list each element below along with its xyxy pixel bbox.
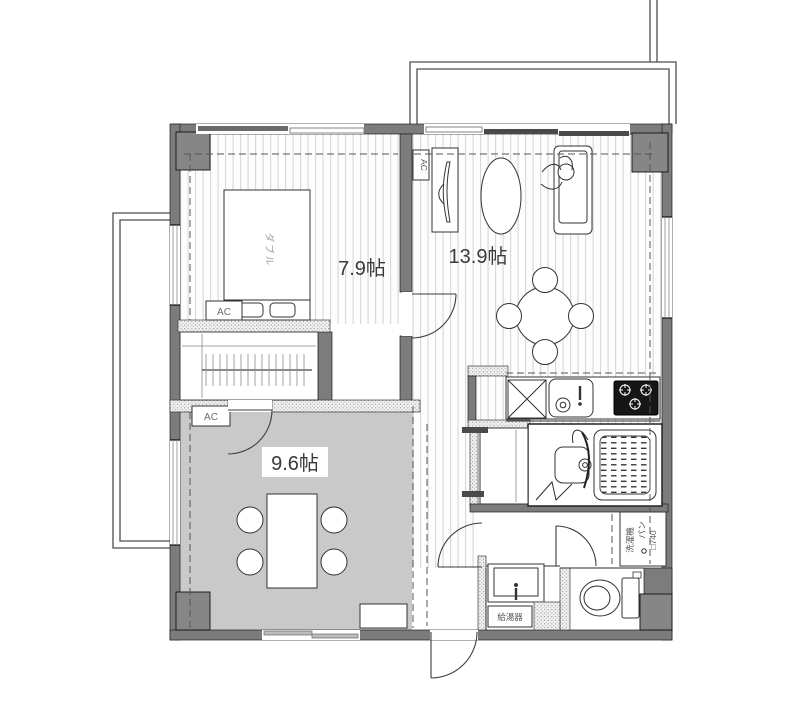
shelf-bracket-top	[462, 427, 488, 433]
floor-plan: 7.9帖 13.9帖 9.6帖 ダブル AC AC AC 洗濯機 パン □740…	[0, 0, 800, 726]
entrance-opening	[430, 630, 478, 640]
low-cabinet	[360, 604, 407, 628]
dining-chair-4	[321, 549, 347, 575]
wall-kitchen-left	[468, 366, 508, 376]
bedroom-window-sash-2	[290, 128, 364, 133]
walk-in-closet	[180, 332, 318, 400]
wall-toilet-left	[560, 568, 570, 630]
ac-label-living: AC	[419, 159, 429, 171]
entrance-floor	[412, 568, 478, 630]
pillow-right	[270, 303, 295, 317]
toilet-bowl	[580, 580, 620, 616]
ac-label-dining: AC	[204, 412, 218, 423]
pillar-top-left	[176, 132, 210, 170]
wall-bedroom-closet	[178, 320, 330, 332]
pillar-bottom-left	[176, 592, 210, 630]
gas-stove	[614, 381, 658, 415]
wall-bottom	[170, 630, 672, 640]
chair-north	[533, 268, 558, 293]
left-window-lower	[170, 440, 180, 545]
dining-chair-3	[237, 549, 263, 575]
living-window-sash-3	[559, 131, 629, 136]
dining-chair-2	[321, 507, 347, 533]
shelf-bracket-bottom	[462, 491, 484, 497]
chair-east	[569, 304, 594, 329]
wall-dining-top-right	[272, 400, 420, 412]
dining-size-label: 9.6帖	[271, 452, 319, 475]
wall-corridor-kitchen	[468, 376, 476, 422]
dining-bottom-window	[262, 630, 360, 640]
chair-south	[533, 340, 558, 365]
living-size-label: 13.9帖	[449, 245, 508, 268]
right-window	[662, 217, 672, 318]
rug-oval	[481, 158, 521, 234]
kitchen	[506, 377, 660, 421]
washer-label-3: □740	[648, 530, 658, 550]
bath-stool	[555, 447, 589, 483]
bathroom	[528, 424, 662, 506]
washbasin	[488, 564, 544, 602]
bathtub-water	[600, 436, 650, 494]
fridge-space	[508, 380, 546, 418]
water-heater-label: 給湯器	[497, 612, 523, 622]
chair-west	[497, 304, 522, 329]
washer-label-2: パン	[637, 521, 647, 538]
bedroom-size-label: 7.9帖	[338, 257, 386, 280]
living-window-sash-2	[484, 129, 558, 134]
toilet-tank	[622, 578, 639, 618]
pillar-bottom-right	[640, 594, 672, 630]
bedroom-door-opening	[402, 292, 412, 336]
kitchen-sink	[549, 379, 593, 417]
round-table	[516, 287, 574, 345]
living-window-sash-1	[426, 127, 482, 132]
ac-label-bedroom: AC	[217, 307, 231, 318]
wall-left	[170, 124, 180, 640]
dining-chair-1	[237, 507, 263, 533]
left-window-upper	[170, 225, 180, 305]
dining-table	[267, 494, 317, 588]
toilet-handle	[633, 572, 641, 578]
wall-bedroom-living-upper	[400, 134, 412, 292]
wall-bedroom-living-lower	[400, 336, 412, 404]
bed-label: ダブル	[263, 233, 275, 268]
bedroom-window-sash-1	[198, 126, 288, 131]
shoe-storage	[534, 602, 560, 630]
wall-closet-right	[318, 332, 332, 402]
washer-label-1: 洗濯機	[625, 527, 635, 553]
